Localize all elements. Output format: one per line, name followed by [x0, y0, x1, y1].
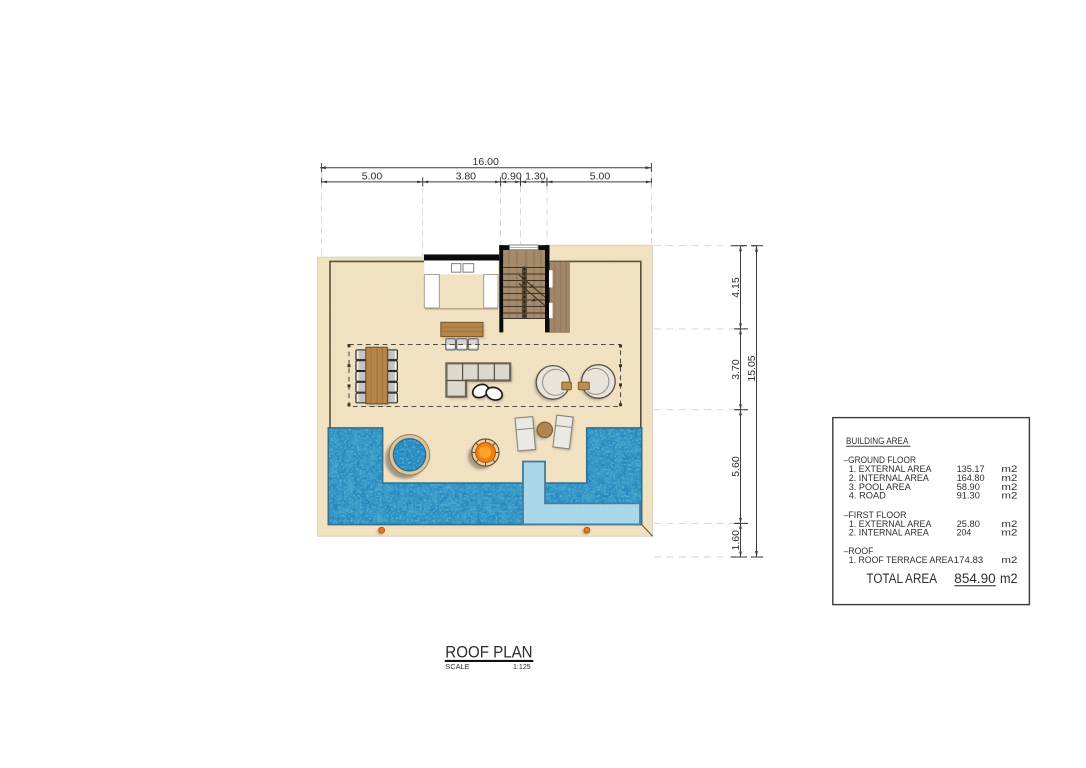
svg-text:TOTAL AREA: TOTAL AREA [866, 571, 937, 586]
svg-text:SCALE: SCALE [445, 662, 469, 671]
svg-text:4. ROAD: 4. ROAD [849, 491, 886, 501]
svg-text:4.15: 4.15 [730, 277, 742, 298]
svg-text:1.60: 1.60 [730, 530, 742, 551]
svg-text:m2: m2 [1001, 528, 1017, 538]
svg-text:204: 204 [957, 528, 972, 538]
svg-text:3.70: 3.70 [730, 359, 742, 380]
svg-text:91.30: 91.30 [957, 491, 980, 501]
svg-text:1. ROOF TERRACE AREA: 1. ROOF TERRACE AREA [849, 555, 954, 565]
svg-text:174.83: 174.83 [954, 555, 984, 565]
svg-text:854.90: 854.90 [954, 571, 995, 586]
svg-text:5.60: 5.60 [730, 456, 742, 477]
svg-text:ROOF PLAN: ROOF PLAN [445, 642, 532, 661]
svg-text:m2: m2 [1001, 555, 1017, 565]
svg-text:1.30: 1.30 [525, 170, 546, 182]
svg-text:BUILDING AREA: BUILDING AREA [846, 436, 909, 446]
svg-text:5.00: 5.00 [590, 170, 611, 182]
svg-text:5.00: 5.00 [362, 170, 383, 182]
svg-text:16.00: 16.00 [473, 156, 499, 168]
svg-text:2. INTERNAL AREA: 2. INTERNAL AREA [849, 528, 929, 538]
svg-text:m2: m2 [1001, 491, 1017, 501]
svg-text:0.90: 0.90 [501, 170, 522, 182]
svg-text:15.05: 15.05 [746, 355, 758, 381]
svg-text:1:125: 1:125 [513, 662, 531, 671]
svg-text:3.80: 3.80 [456, 170, 477, 182]
svg-text:m2: m2 [1000, 571, 1018, 586]
